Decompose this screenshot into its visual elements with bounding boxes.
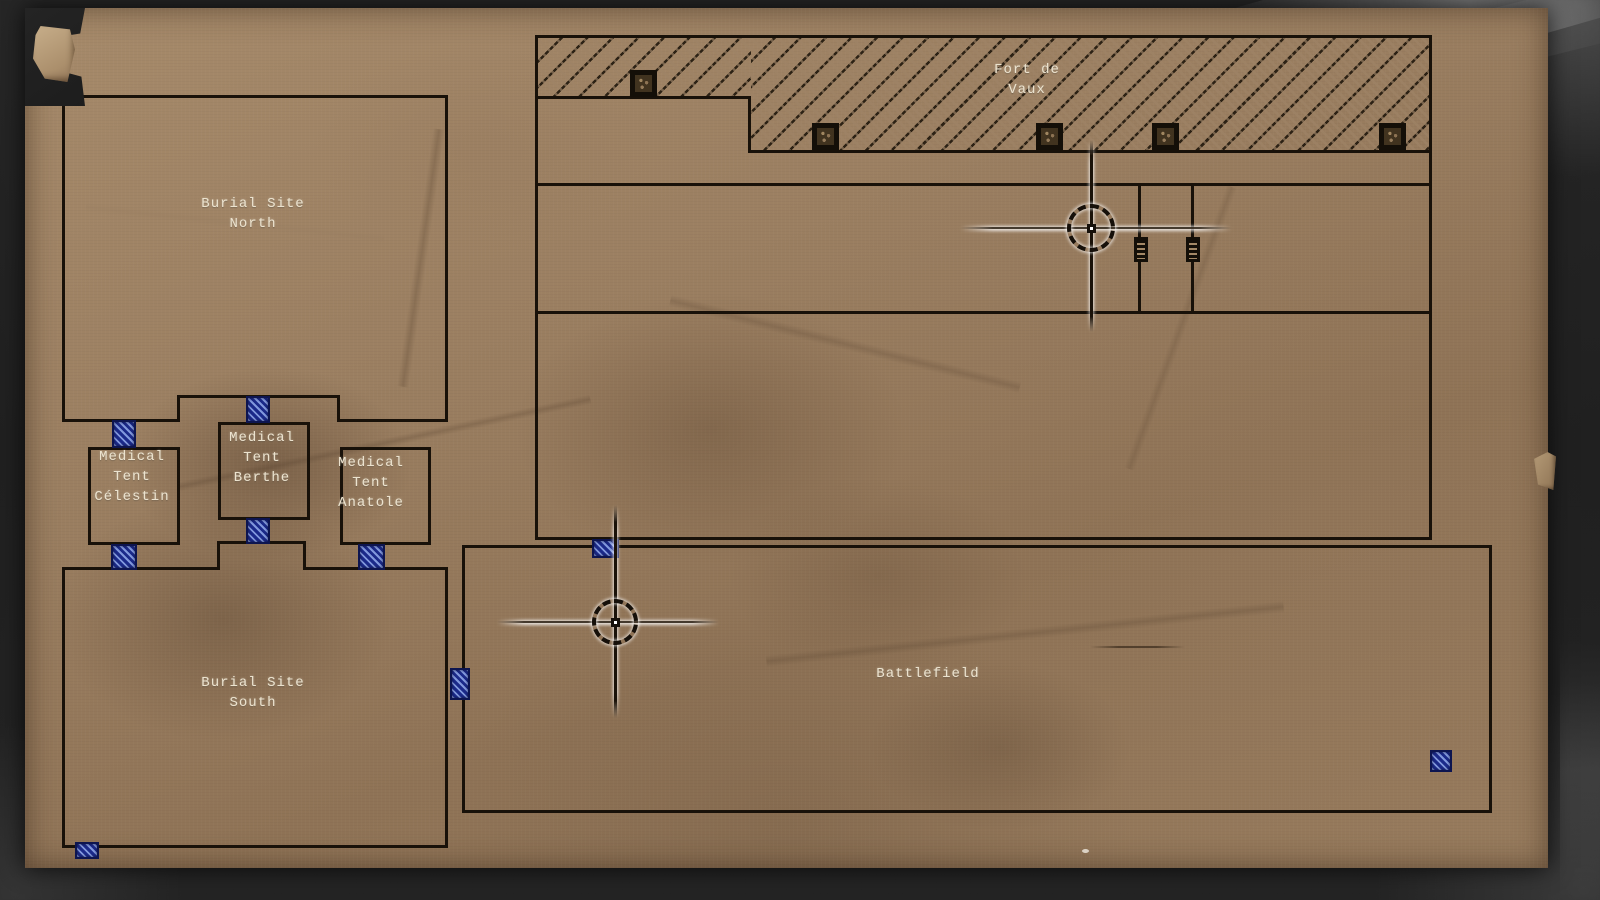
wall-segment (340, 447, 431, 450)
door-marker (111, 544, 137, 570)
door-marker (75, 842, 99, 859)
wall-segment (535, 183, 1432, 186)
label-burial-site-north: Burial Site North (201, 194, 304, 234)
wall-segment (1489, 545, 1492, 813)
door-marker (246, 396, 270, 423)
ladder-icon (1186, 237, 1200, 262)
wall-segment (217, 541, 220, 570)
wall-segment (88, 447, 91, 545)
door-marker (450, 668, 470, 700)
label-medical-tent-anatole: Medical Tent Anatole (338, 453, 404, 513)
wall-segment (748, 96, 751, 153)
hatch-door-icon (1036, 123, 1063, 150)
wall-segment (177, 395, 180, 422)
map-scratch-line (1090, 646, 1185, 648)
ladder-icon (1134, 237, 1148, 262)
door-marker (112, 420, 136, 448)
wall-segment (445, 567, 448, 848)
wall-segment (445, 95, 448, 422)
wall-segment (62, 567, 220, 570)
ladder-rungs (1137, 240, 1145, 259)
hatch-door-glyph (1384, 128, 1401, 145)
label-medical-tent-celestin: Medical Tent Célestin (94, 447, 169, 507)
wall-segment (1429, 35, 1432, 540)
door-marker (358, 544, 385, 570)
ladder-rungs (1189, 240, 1197, 259)
wall-segment (303, 541, 306, 570)
wall-segment (340, 542, 431, 545)
wall-segment (535, 35, 1432, 38)
wall-segment (428, 447, 431, 545)
hatch-door-glyph (817, 128, 834, 145)
fort-hatched-zone (751, 38, 1429, 150)
door-marker (246, 518, 270, 544)
wall-segment (62, 567, 65, 848)
wall-segment (535, 35, 538, 540)
wall-segment (535, 537, 1432, 540)
wall-segment (62, 95, 448, 98)
frame-scratch-streak (1560, 640, 1600, 900)
wall-segment (462, 810, 1492, 813)
wall-segment (307, 422, 310, 520)
paper-speck (1082, 849, 1089, 853)
hatch-door-glyph (635, 75, 652, 92)
hatch-door-icon (1379, 123, 1406, 150)
hatch-door-icon (812, 123, 839, 150)
label-medical-tent-berthe: Medical Tent Berthe (229, 428, 295, 488)
wall-segment (62, 95, 65, 422)
wall-segment (218, 422, 221, 520)
crosshair-dot (611, 618, 620, 627)
wall-segment (535, 311, 1432, 314)
door-marker (1430, 750, 1452, 772)
wall-segment (337, 419, 448, 422)
crosshair-dot (1087, 224, 1096, 233)
label-fort-de-vaux: Fort de Vaux (994, 60, 1060, 100)
map-screen: Burial Site North Medical Tent Célestin … (0, 0, 1600, 900)
hatch-door-glyph (1157, 128, 1174, 145)
label-burial-site-south: Burial Site South (201, 673, 304, 713)
label-battlefield: Battlefield (876, 664, 979, 684)
wall-segment (62, 845, 448, 848)
hatch-door-icon (630, 70, 657, 97)
wall-segment (337, 395, 340, 422)
hatch-door-glyph (1041, 128, 1058, 145)
wall-segment (177, 447, 180, 545)
hatch-door-icon (1152, 123, 1179, 150)
